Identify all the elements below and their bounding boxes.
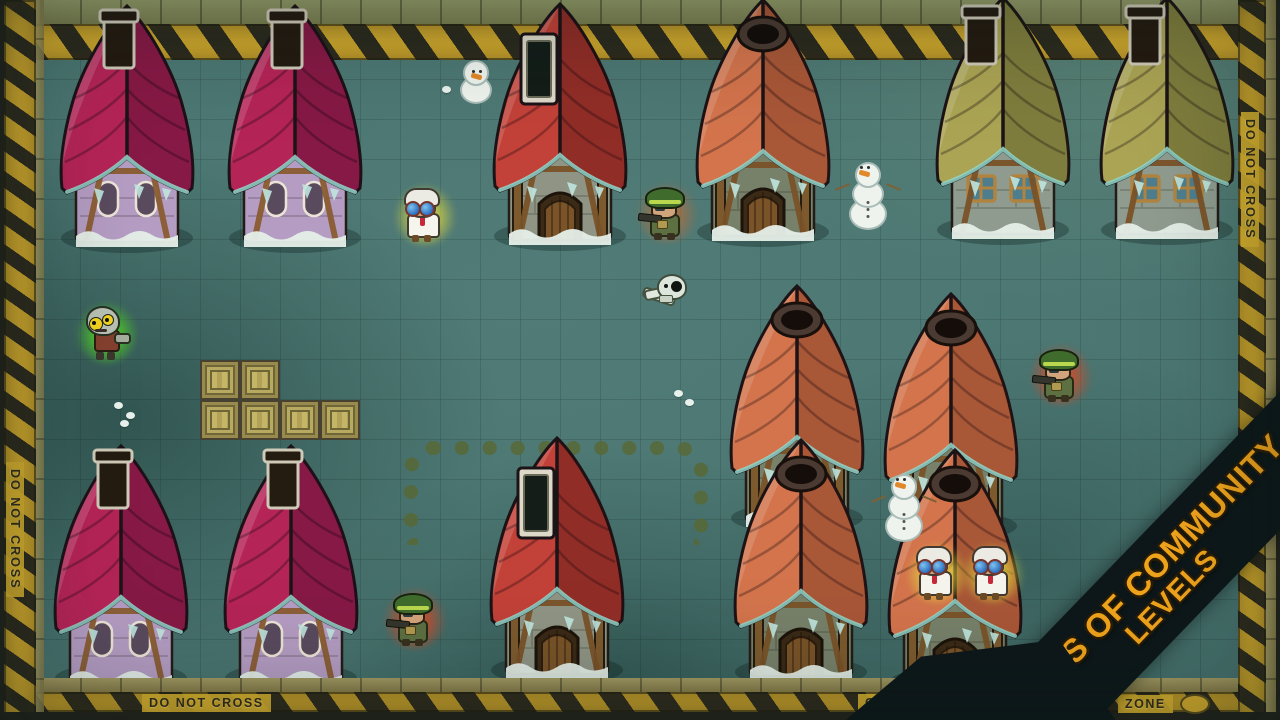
soldier-character[interactable] xyxy=(1036,348,1086,404)
zombie-head xyxy=(86,306,120,336)
do-not-cross-label-left: DO NOT CROSS xyxy=(6,462,24,597)
border-tiles-left xyxy=(36,0,44,720)
wooden-crate xyxy=(280,400,320,440)
wooden-crate xyxy=(200,360,240,400)
zone-label: ZONE xyxy=(1118,695,1173,713)
do-not-cross-label-bottom: DO NOT CROSS xyxy=(142,694,271,712)
scientist-character[interactable] xyxy=(912,546,962,602)
caution-tape-right xyxy=(1238,0,1266,720)
soldier-character[interactable] xyxy=(390,592,440,648)
zombie-eye xyxy=(102,314,114,326)
zombie-character[interactable] xyxy=(82,306,132,362)
soldier-helmet xyxy=(393,593,433,615)
zombie-arm xyxy=(114,333,131,344)
zone-oval-icon xyxy=(1180,694,1210,714)
caution-tape-left xyxy=(4,0,36,720)
zone-indicator: ZONE xyxy=(1118,694,1210,714)
soldier-character[interactable] xyxy=(642,186,692,242)
snowman xyxy=(880,472,928,542)
wooden-crate xyxy=(200,400,240,440)
goggles-icon xyxy=(419,201,435,217)
wooden-crate xyxy=(240,400,280,440)
skull xyxy=(642,274,688,308)
soldier-pouch xyxy=(405,626,416,635)
do-not-cross-label-right: DO NOT CROSS xyxy=(1241,112,1259,247)
wooden-crate xyxy=(240,360,280,400)
soldier-helmet xyxy=(645,187,685,209)
goggles-icon xyxy=(931,559,947,575)
scientist-character[interactable] xyxy=(968,546,1018,602)
soldier-pouch xyxy=(1051,382,1062,391)
game-screen: DO NOT CROSS CONTAGION AREA ZONE DO NOT … xyxy=(0,0,1280,720)
snowman-small xyxy=(456,58,496,104)
snowman xyxy=(844,160,892,230)
border-tiles-right xyxy=(1266,0,1276,720)
screen-edge-right xyxy=(1276,0,1280,720)
scientist-character[interactable] xyxy=(400,188,450,244)
soldier-helmet xyxy=(1039,349,1079,371)
soldier-pouch xyxy=(657,220,668,229)
goggles-icon xyxy=(987,559,1003,575)
wooden-crate xyxy=(320,400,360,440)
screen-edge-left xyxy=(0,0,4,720)
